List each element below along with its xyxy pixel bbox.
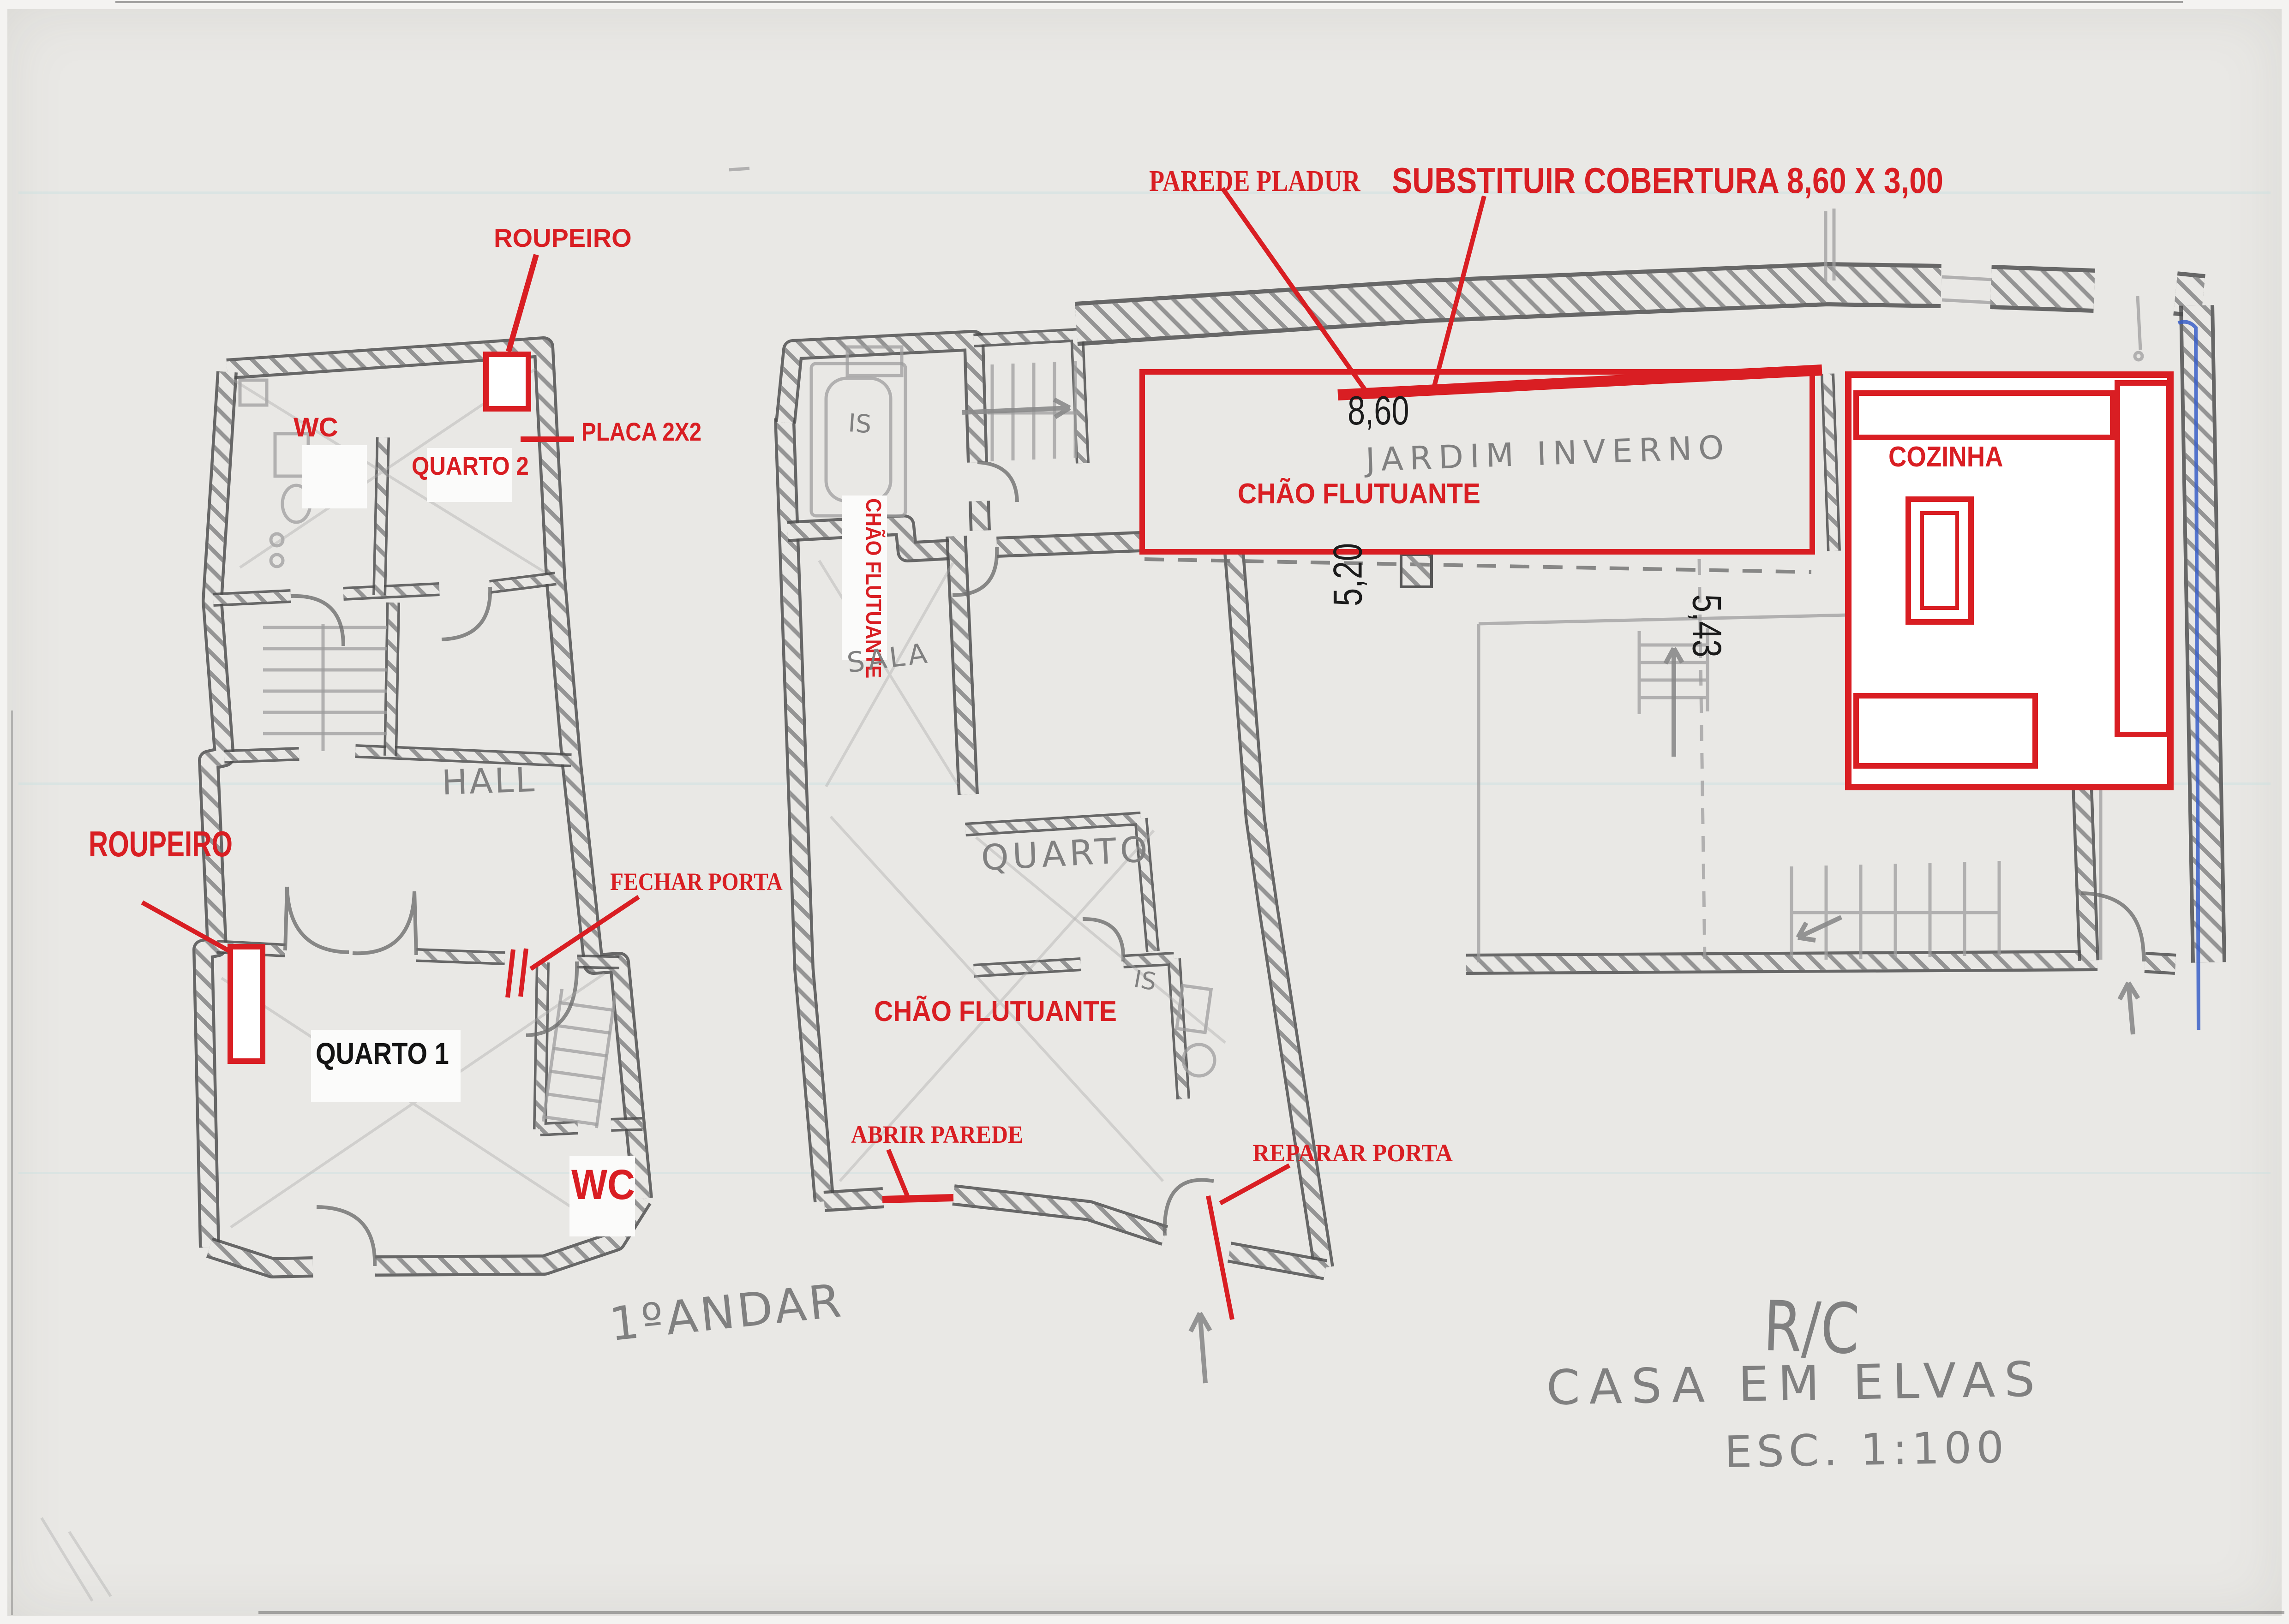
annotation-quarto-2: QUARTO 2 (412, 453, 529, 479)
entrance-arrows (1191, 983, 2138, 1383)
annotation-wc-bottom: WC (571, 1164, 635, 1206)
kitchen-counter-top (1856, 393, 2113, 437)
annotation-placa-2x2: PLACA 2X2 (581, 419, 701, 445)
annotation-roupeiro-top: ROUPEIRO (494, 225, 632, 251)
dimension-5-43: 5,43 (1686, 594, 1727, 657)
reparar-porta-leader (1220, 1165, 1289, 1203)
annotation-substituir-cobertura: SUBSTITUIR COBERTURA 8,60 X 3,00 (1392, 162, 1943, 198)
label-quarto-1: QUARTO 1 (316, 1038, 449, 1069)
pencil-label-is-lower: IS (1132, 967, 1158, 995)
annotation-reparar-porta: REPARAR PORTA (1252, 1140, 1453, 1165)
pencil-label-quarto: QUARTO (980, 832, 1152, 876)
roupeiro-top-leader (509, 255, 536, 352)
kitchen-red-layout (1848, 375, 2170, 787)
kitchen-counter-right (2117, 383, 2169, 734)
fechar-porta-door-mark (508, 949, 526, 997)
annotation-chao-flutuante-quarto: CHÃO FLUTUANTE (874, 997, 1117, 1026)
roupeiro-top-box (486, 354, 528, 409)
scanned-floor-plan-sheet: PAREDE PLADUR SUBSTITUIR COBERTURA 8,60 … (0, 0, 2289, 1624)
pencil-label-floor-rc: R/C (1762, 1292, 1861, 1364)
roupeiro-left-box (230, 947, 263, 1061)
pencil-label-scale: ESC. 1:100 (1724, 1426, 2009, 1475)
kitchen-counter-bottom (1856, 696, 2035, 766)
annotation-fechar-porta: FECHAR PORTA (610, 869, 783, 894)
annotation-roupeiro-left: ROUPEIRO (89, 826, 233, 862)
annotation-wc-top: WC (294, 414, 338, 441)
dimension-8-60: 8,60 (1348, 390, 1409, 431)
dimension-5-20: 5,20 (1327, 543, 1368, 606)
abrir-parede-wall-mark (882, 1198, 953, 1200)
annotation-parede-pladur: PAREDE PLADUR (1149, 166, 1360, 197)
annotation-cozinha: COZINHA (1888, 443, 2003, 472)
pencil-label-is-upper: IS (847, 411, 872, 437)
annotation-abrir-parede: ABRIR PAREDE (851, 1122, 1023, 1147)
pencil-label-hall: HALL (441, 763, 537, 800)
annotation-chao-flutuante-jardim: CHÃO FLUTUANTE (1238, 480, 1480, 508)
white-patch-wc-top (302, 445, 367, 508)
abrir-parede-leader (888, 1150, 907, 1196)
first-floor-plan-walls (203, 347, 642, 1268)
pencil-label-project-title: CASA EM ELVAS (1546, 1355, 2044, 1412)
